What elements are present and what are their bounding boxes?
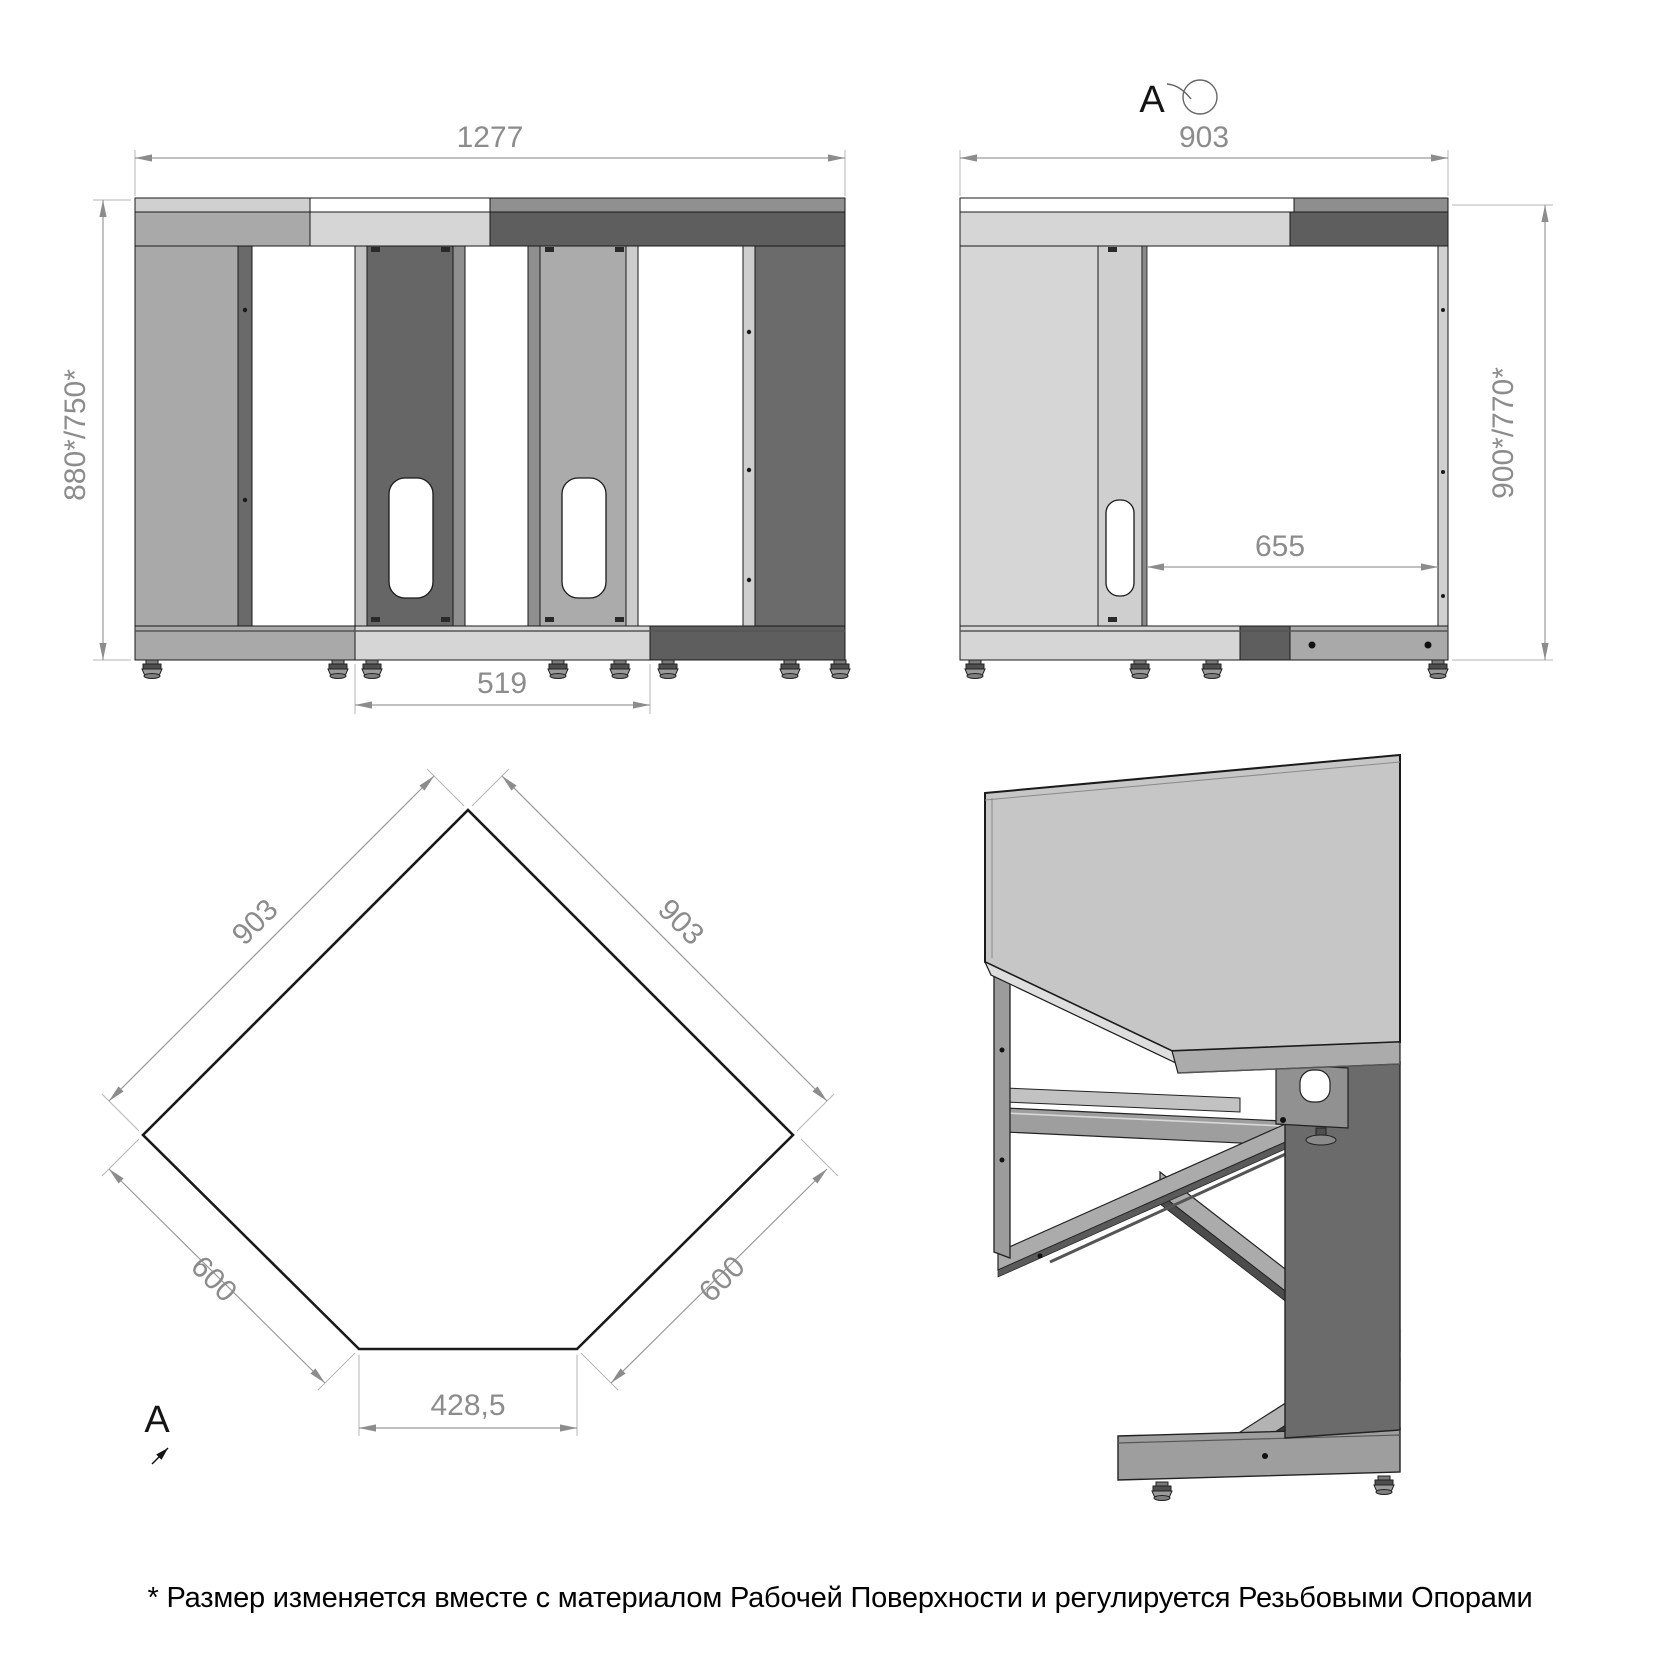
cable-slot xyxy=(1106,500,1134,596)
adjustable-foot xyxy=(548,660,568,679)
adjustable-foot xyxy=(830,660,850,679)
front-view: 1277 880*/750* xyxy=(59,121,850,714)
plan-upper-right-dimension: 903 xyxy=(651,893,710,952)
adjustable-foot xyxy=(1374,1476,1394,1495)
plan-view: 903 903 600 600 428,5 A xyxy=(102,769,838,1464)
plan-bottom-dimension: 428,5 xyxy=(430,1389,505,1422)
adjustable-foot xyxy=(1428,660,1448,679)
side-inner-dimension: 655 xyxy=(1255,530,1305,563)
plan-lower-left-dimension: 600 xyxy=(184,1250,243,1309)
footnote: * Размер изменяется вместе с материалом … xyxy=(0,1582,1680,1615)
adjustable-foot xyxy=(610,660,630,679)
worktop-outline xyxy=(143,810,793,1349)
front-base-dimension: 519 xyxy=(477,667,527,700)
adjustable-foot xyxy=(1202,660,1222,679)
side-detail-marker: A xyxy=(1139,79,1165,121)
adjustable-foot xyxy=(780,660,800,679)
iso-detail-view xyxy=(985,755,1400,1501)
cable-slot xyxy=(562,478,606,598)
adjustable-foot xyxy=(658,660,678,679)
view-direction-arrow-icon xyxy=(152,1448,168,1464)
adjustable-foot xyxy=(362,660,382,679)
adjustable-foot xyxy=(1152,1482,1172,1501)
plan-lower-right-dimension: 600 xyxy=(693,1250,752,1309)
side-width-dimension: 903 xyxy=(1179,121,1229,154)
front-width-dimension: 1277 xyxy=(457,121,524,154)
iso-left-post xyxy=(994,964,1010,1258)
front-left-panel xyxy=(135,246,238,626)
side-height-dimension: 900*/770* xyxy=(1487,367,1520,499)
front-right-panel xyxy=(755,246,845,626)
side-left-panel xyxy=(960,246,1098,626)
iso-tabletop xyxy=(985,755,1400,1051)
technical-drawing-sheet: 1277 880*/750* xyxy=(0,0,1680,1680)
side-view: A 903 655 xyxy=(960,79,1553,679)
detail-circle-icon xyxy=(1183,80,1217,114)
cable-slot xyxy=(389,478,433,598)
adjustable-foot xyxy=(328,660,348,679)
plan-upper-left-dimension: 903 xyxy=(226,893,285,952)
cable-slot xyxy=(1300,1070,1330,1102)
plan-detail-marker: A xyxy=(144,1399,170,1441)
adjustable-foot xyxy=(142,660,162,679)
adjustable-foot xyxy=(1130,660,1150,679)
front-height-dimension: 880*/750* xyxy=(59,369,92,501)
drawing-svg: 1277 880*/750* xyxy=(0,0,1680,1680)
adjustable-foot xyxy=(965,660,985,679)
